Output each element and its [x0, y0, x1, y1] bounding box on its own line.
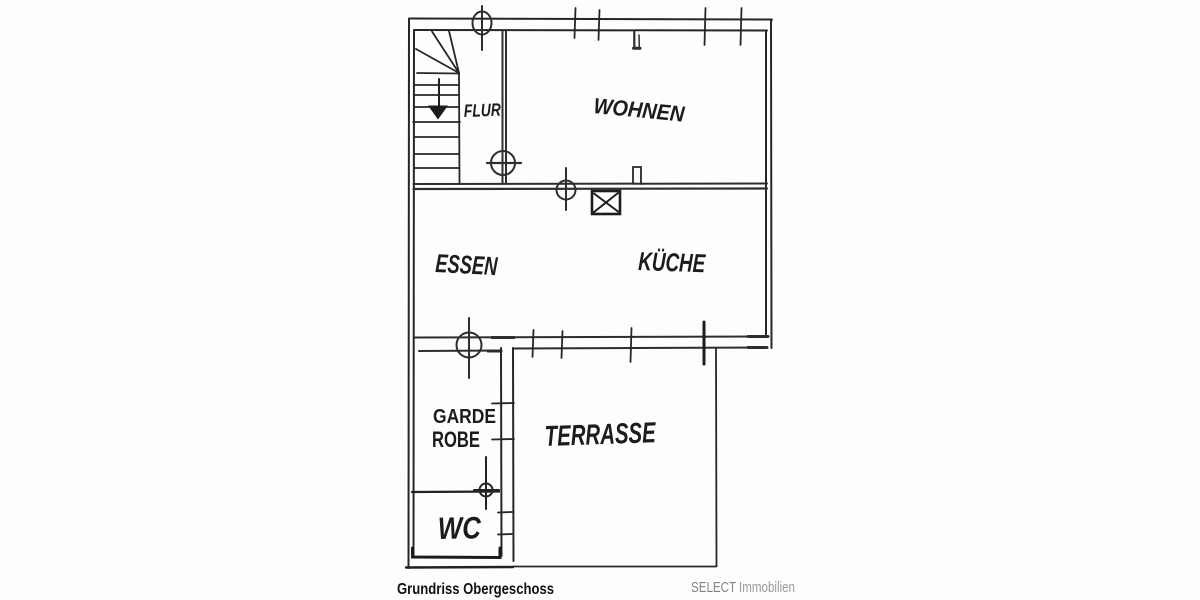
svg-text:FLUR: FLUR	[463, 100, 501, 121]
svg-text:SELECT Immobilien: SELECT Immobilien	[691, 579, 795, 596]
svg-text:GARDE: GARDE	[433, 406, 496, 428]
svg-text:WC: WC	[438, 510, 482, 546]
svg-text:TERRASSE: TERRASSE	[544, 417, 657, 453]
svg-text:ROBE: ROBE	[432, 427, 480, 452]
svg-text:Grundriss Obergeschoss: Grundriss Obergeschoss	[397, 581, 554, 598]
svg-text:ESSEN: ESSEN	[435, 248, 499, 281]
svg-text:KÜCHE: KÜCHE	[638, 246, 706, 278]
